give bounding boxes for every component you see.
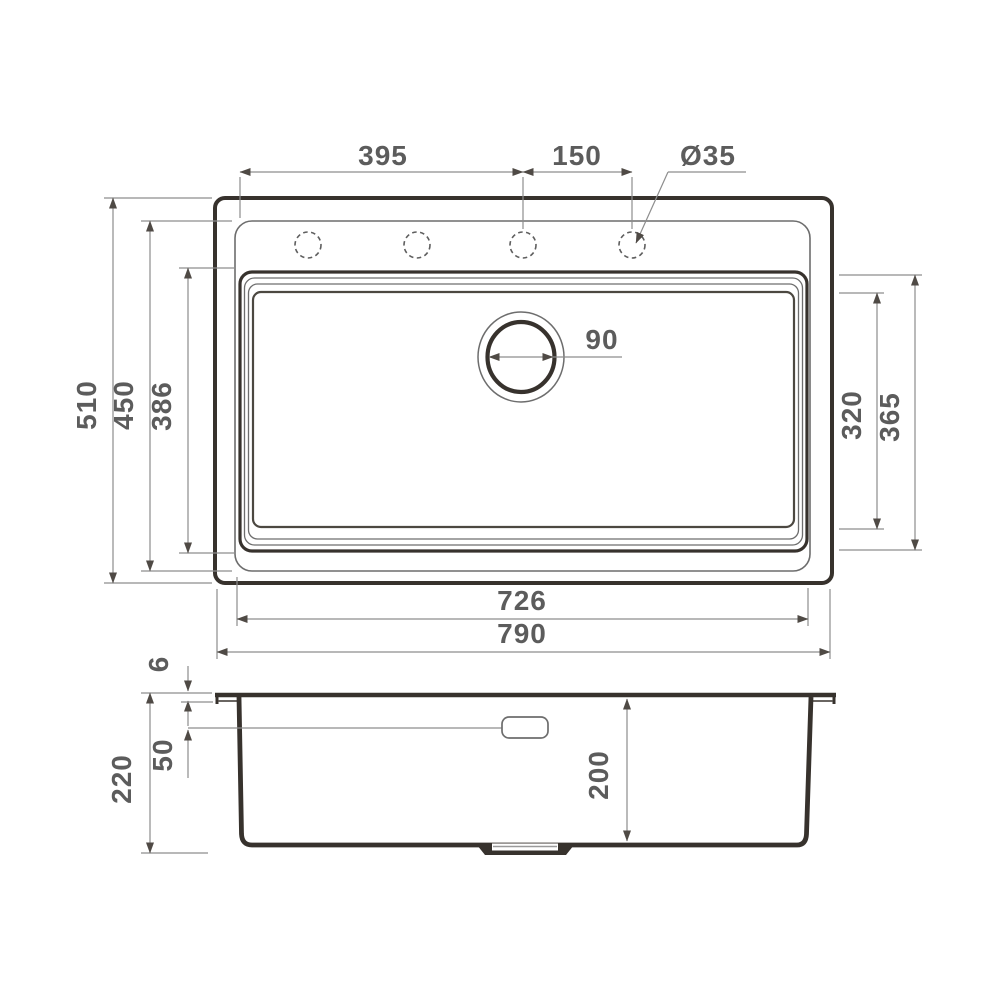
dim-label-90: 90	[585, 324, 618, 355]
overflow-hole	[502, 717, 548, 738]
dim-label-220: 220	[106, 754, 137, 804]
dim-label-50: 50	[147, 738, 178, 771]
section-view	[188, 695, 836, 855]
faucet-hole-1	[295, 232, 321, 258]
faucet-hole-4	[619, 232, 645, 258]
dim-label-hole-diameter: Ø35	[680, 140, 736, 171]
section-bowl-profile	[239, 697, 811, 845]
dim-label-510: 510	[71, 380, 102, 430]
bowl-outline-outer	[240, 272, 807, 551]
sink-dimension-diagram: 395 150 Ø35 90 510 450 386 320 365	[0, 0, 1000, 1000]
dim-label-365: 365	[874, 392, 905, 442]
top-view	[215, 198, 832, 583]
dim-label-726: 726	[497, 585, 547, 616]
dim-label-386: 386	[146, 381, 177, 431]
bowl-outline-step1	[245, 278, 803, 545]
dim-label-450: 450	[108, 380, 139, 430]
dim-label-395: 395	[358, 140, 408, 171]
dim-label-320: 320	[836, 390, 867, 440]
bowl-outline-inner	[253, 292, 794, 527]
technical-drawing-page: 395 150 Ø35 90 510 450 386 320 365	[0, 0, 1000, 1000]
dim-label-790: 790	[497, 618, 547, 649]
dim-label-200: 200	[583, 750, 614, 800]
dim-label-6: 6	[143, 656, 174, 673]
faucet-hole-3	[510, 232, 536, 258]
callout-leader-line	[636, 172, 668, 243]
dim-label-150: 150	[552, 140, 602, 171]
faucet-hole-2	[404, 232, 430, 258]
section-view-dimensions: 6 50 220 200	[106, 656, 627, 853]
